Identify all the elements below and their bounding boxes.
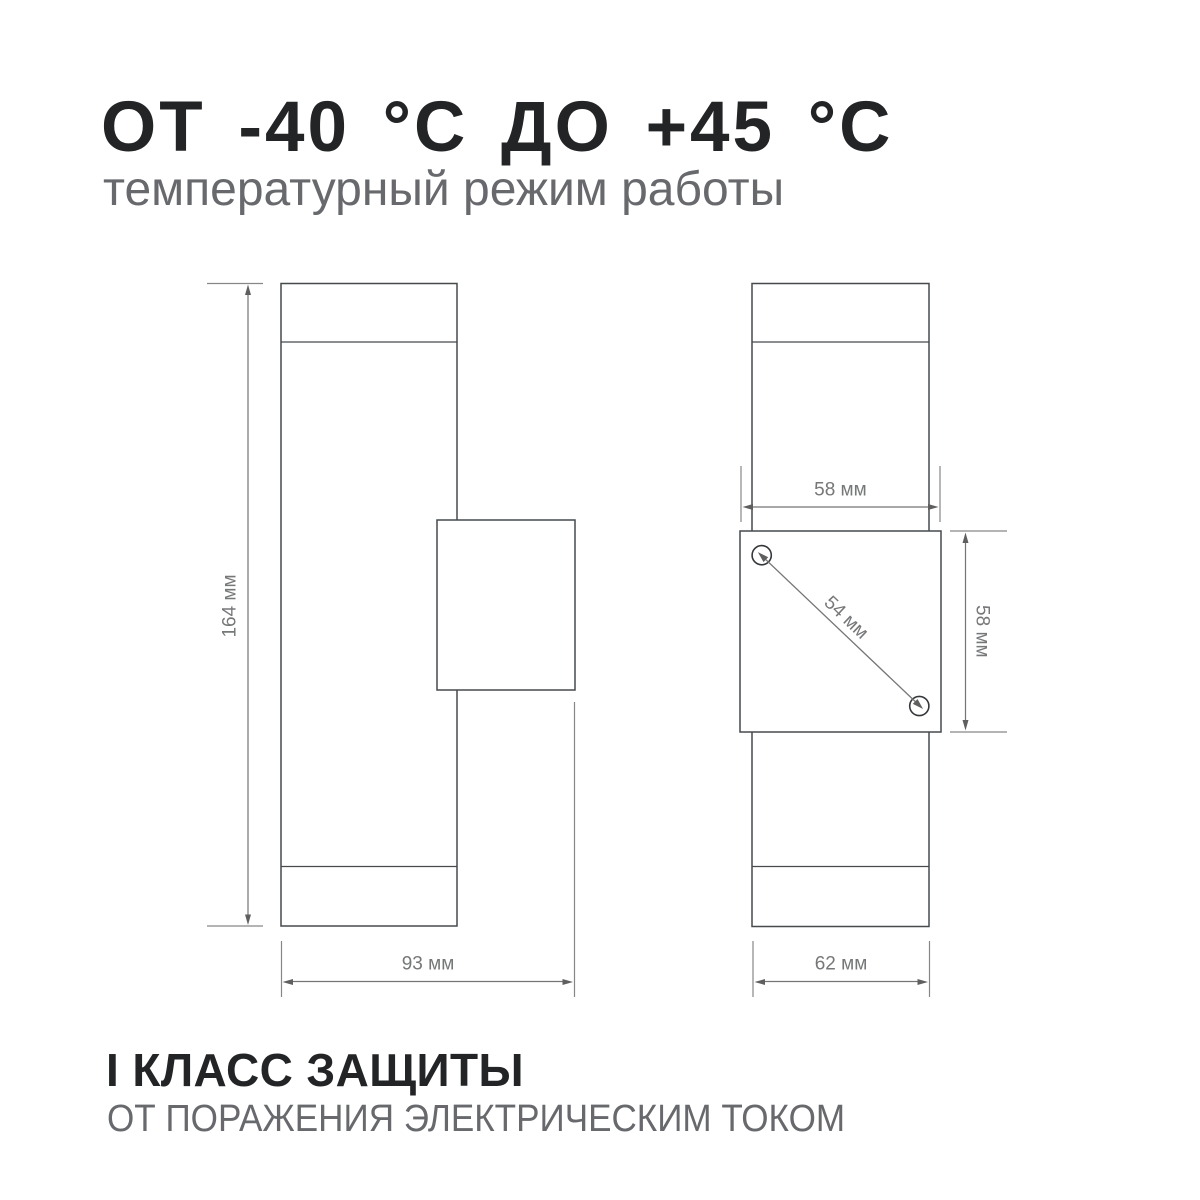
svg-text:93 мм: 93 мм (402, 954, 455, 975)
svg-text:58 мм: 58 мм (972, 605, 993, 658)
svg-text:164 мм: 164 мм (220, 574, 241, 637)
svg-text:62 мм: 62 мм (815, 954, 868, 975)
svg-text:58 мм: 58 мм (814, 480, 867, 501)
